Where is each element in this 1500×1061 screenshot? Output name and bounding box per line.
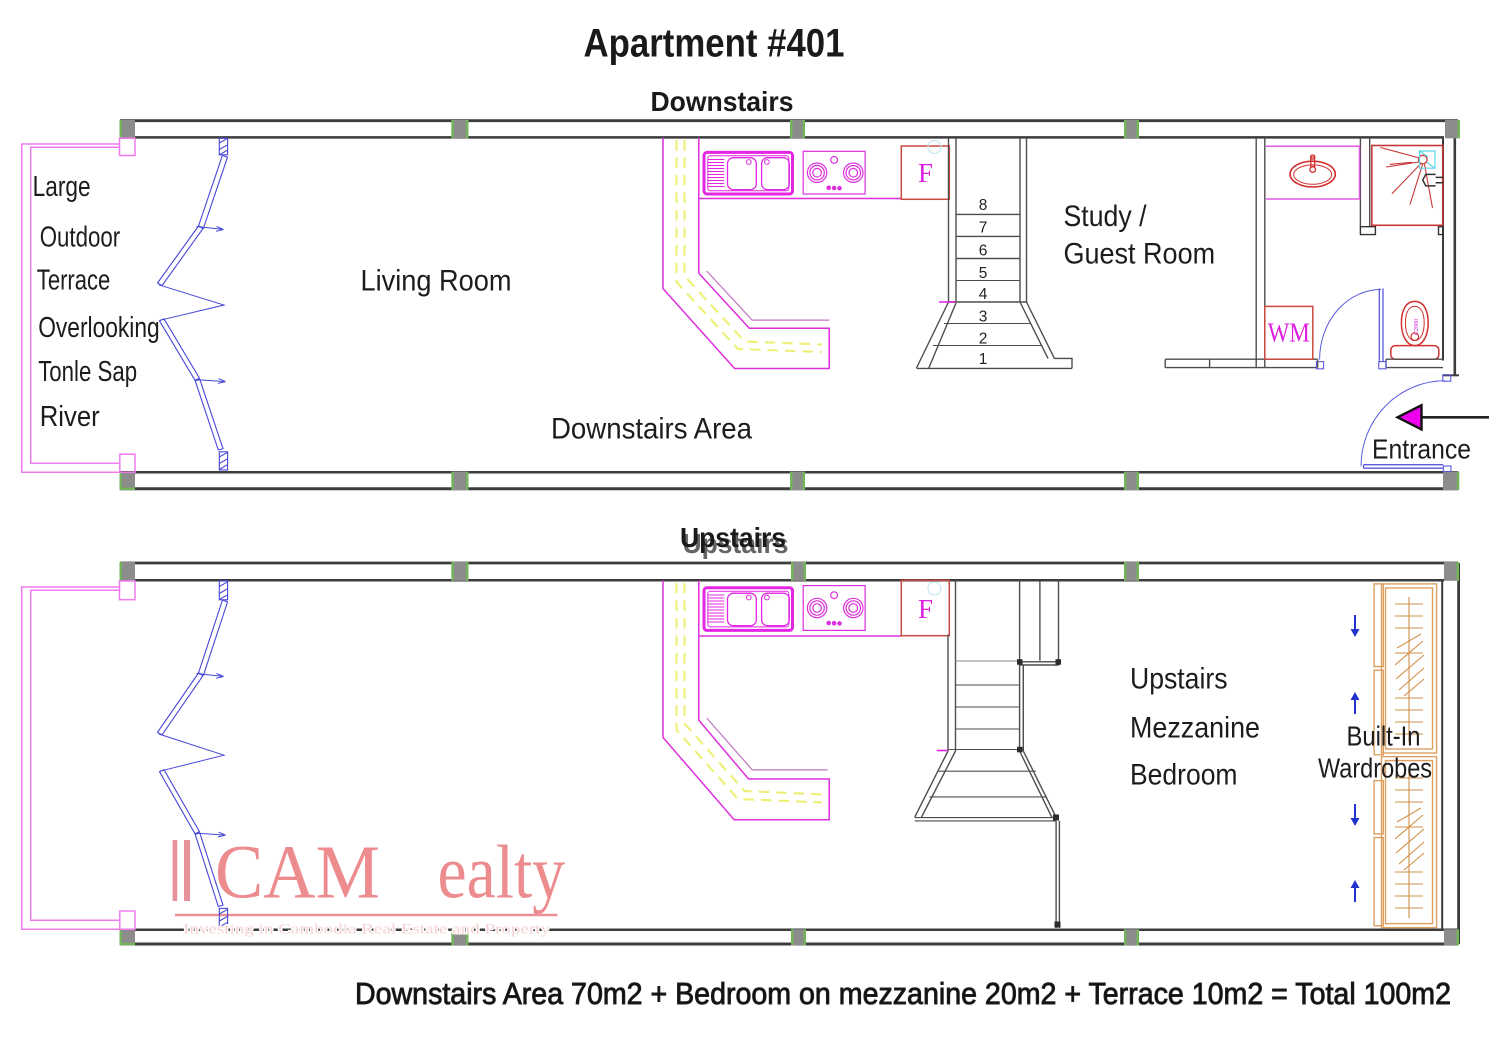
svg-text:1: 1: [979, 351, 988, 368]
svg-text:Downstairs Area: Downstairs Area: [551, 413, 752, 446]
svg-text:5: 5: [979, 265, 988, 282]
svg-text:Mezzanine: Mezzanine: [1130, 712, 1260, 745]
svg-text:River: River: [40, 401, 100, 433]
svg-text:Bedroom: Bedroom: [1130, 759, 1238, 792]
svg-text:WM: WM: [1268, 318, 1310, 348]
svg-text:Tonle Sap: Tonle Sap: [38, 356, 137, 388]
svg-text:8: 8: [979, 197, 988, 214]
svg-text:Living Room: Living Room: [361, 264, 512, 297]
svg-text:4: 4: [979, 286, 988, 303]
svg-text:C2880: C2880: [1414, 319, 1420, 335]
svg-text:Study /: Study /: [1064, 200, 1148, 233]
svg-text:Guest Room: Guest Room: [1064, 238, 1216, 271]
svg-text:Downstairs: Downstairs: [651, 86, 794, 117]
svg-text:Large: Large: [33, 171, 91, 203]
svg-text:Terrace: Terrace: [37, 265, 111, 297]
svg-text:Upstairs: Upstairs: [1130, 663, 1228, 696]
svg-text:Entrance: Entrance: [1372, 434, 1471, 465]
svg-text:Investing in Cambodia Real Est: Investing in Cambodia Real Estate and Pr…: [183, 922, 551, 938]
svg-text:Apartment #401: Apartment #401: [584, 22, 845, 66]
svg-text:Outdoor: Outdoor: [40, 222, 121, 254]
svg-text:2: 2: [979, 331, 988, 348]
svg-text:Upstairs: Upstairs: [680, 522, 786, 553]
svg-text:Downstairs Area 70m2 + Bedroom: Downstairs Area 70m2 + Bedroom on mezzan…: [355, 977, 1451, 1011]
svg-text:7: 7: [979, 220, 988, 237]
svg-text:6: 6: [979, 243, 988, 260]
svg-text:F: F: [918, 158, 933, 188]
svg-text:ealty: ealty: [438, 831, 566, 915]
svg-text:F: F: [918, 594, 933, 624]
svg-text:Overlooking: Overlooking: [38, 312, 160, 344]
svg-text:Built-In: Built-In: [1347, 721, 1421, 752]
svg-text:CAM: CAM: [215, 831, 380, 915]
svg-text:Wardrobes: Wardrobes: [1318, 753, 1432, 784]
svg-text:3: 3: [979, 309, 988, 326]
